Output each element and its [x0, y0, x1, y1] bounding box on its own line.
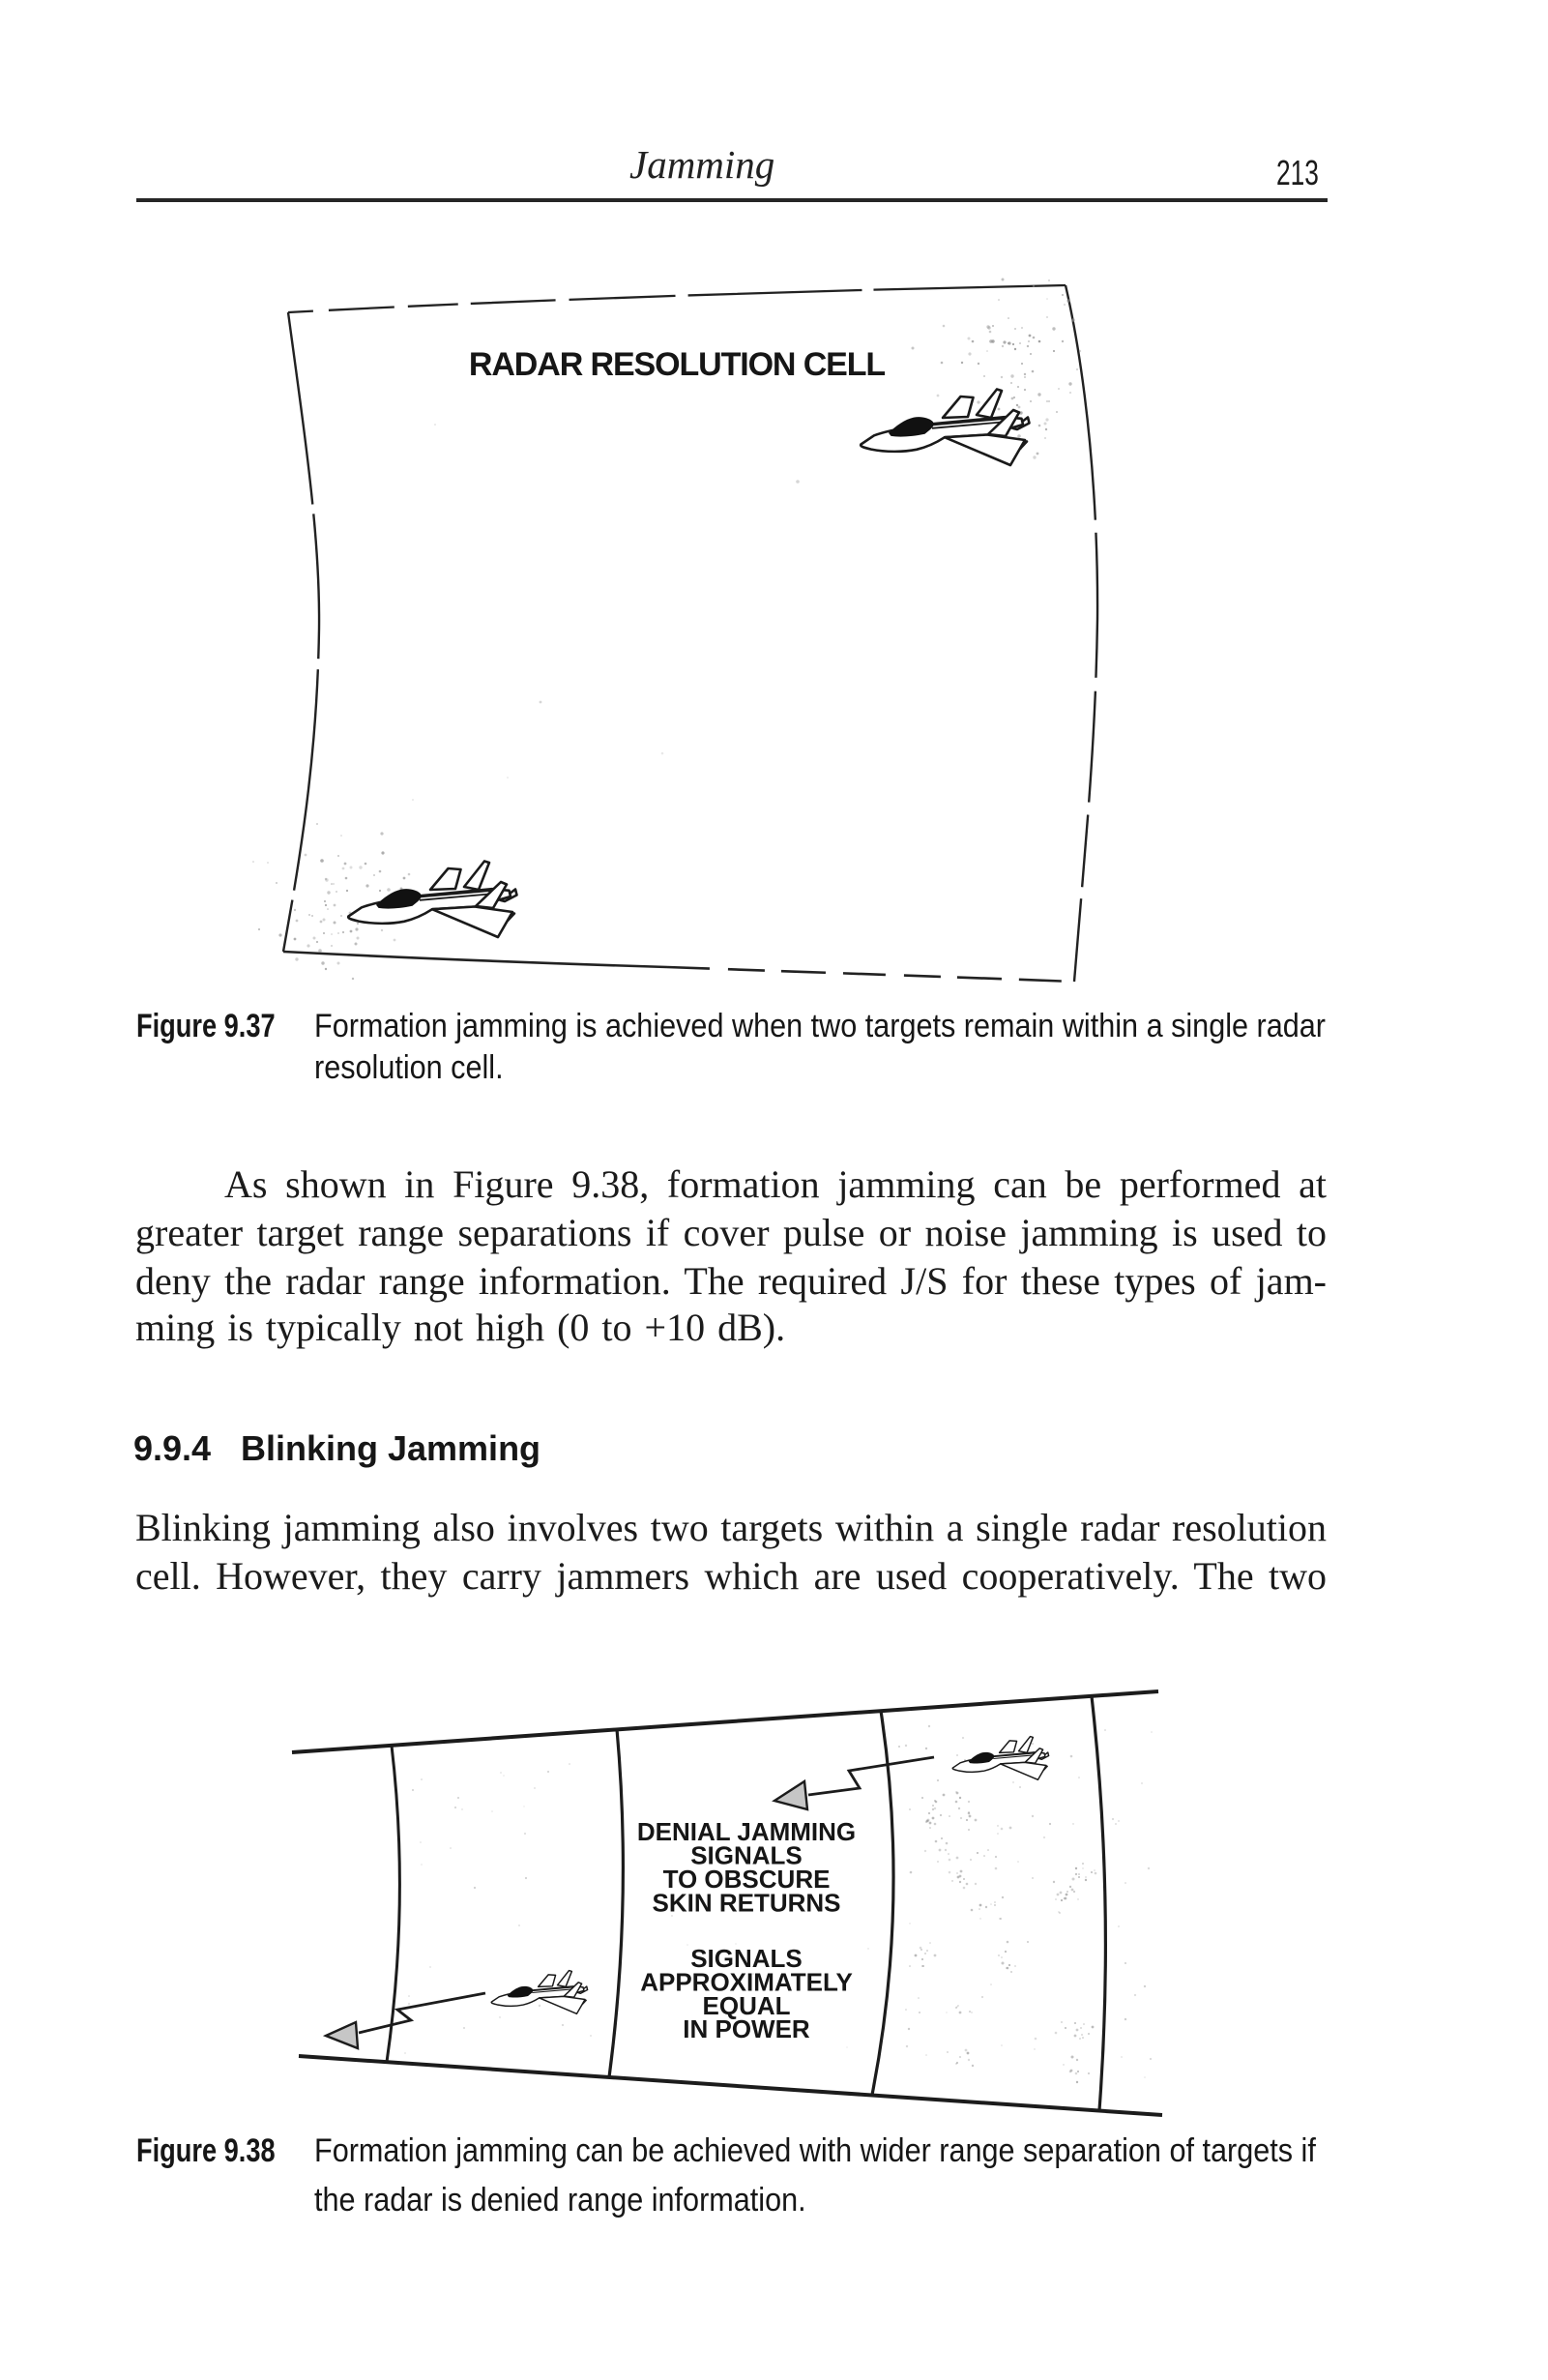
- svg-text:IN POWER: IN POWER: [683, 2014, 810, 2043]
- svg-text:RADAR RESOLUTION CELL: RADAR RESOLUTION CELL: [469, 346, 886, 383]
- svg-text:SKIN RETURNS: SKIN RETURNS: [652, 1889, 840, 1918]
